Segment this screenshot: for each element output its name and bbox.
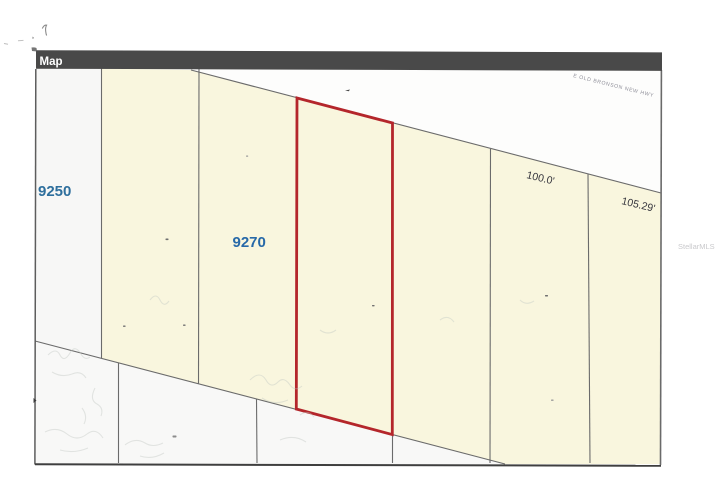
svg-text:9250: 9250 — [38, 183, 71, 200]
svg-text:StellarMLS: StellarMLS — [678, 242, 715, 251]
svg-text:9270: 9270 — [233, 234, 266, 251]
svg-text:Map: Map — [40, 56, 63, 68]
